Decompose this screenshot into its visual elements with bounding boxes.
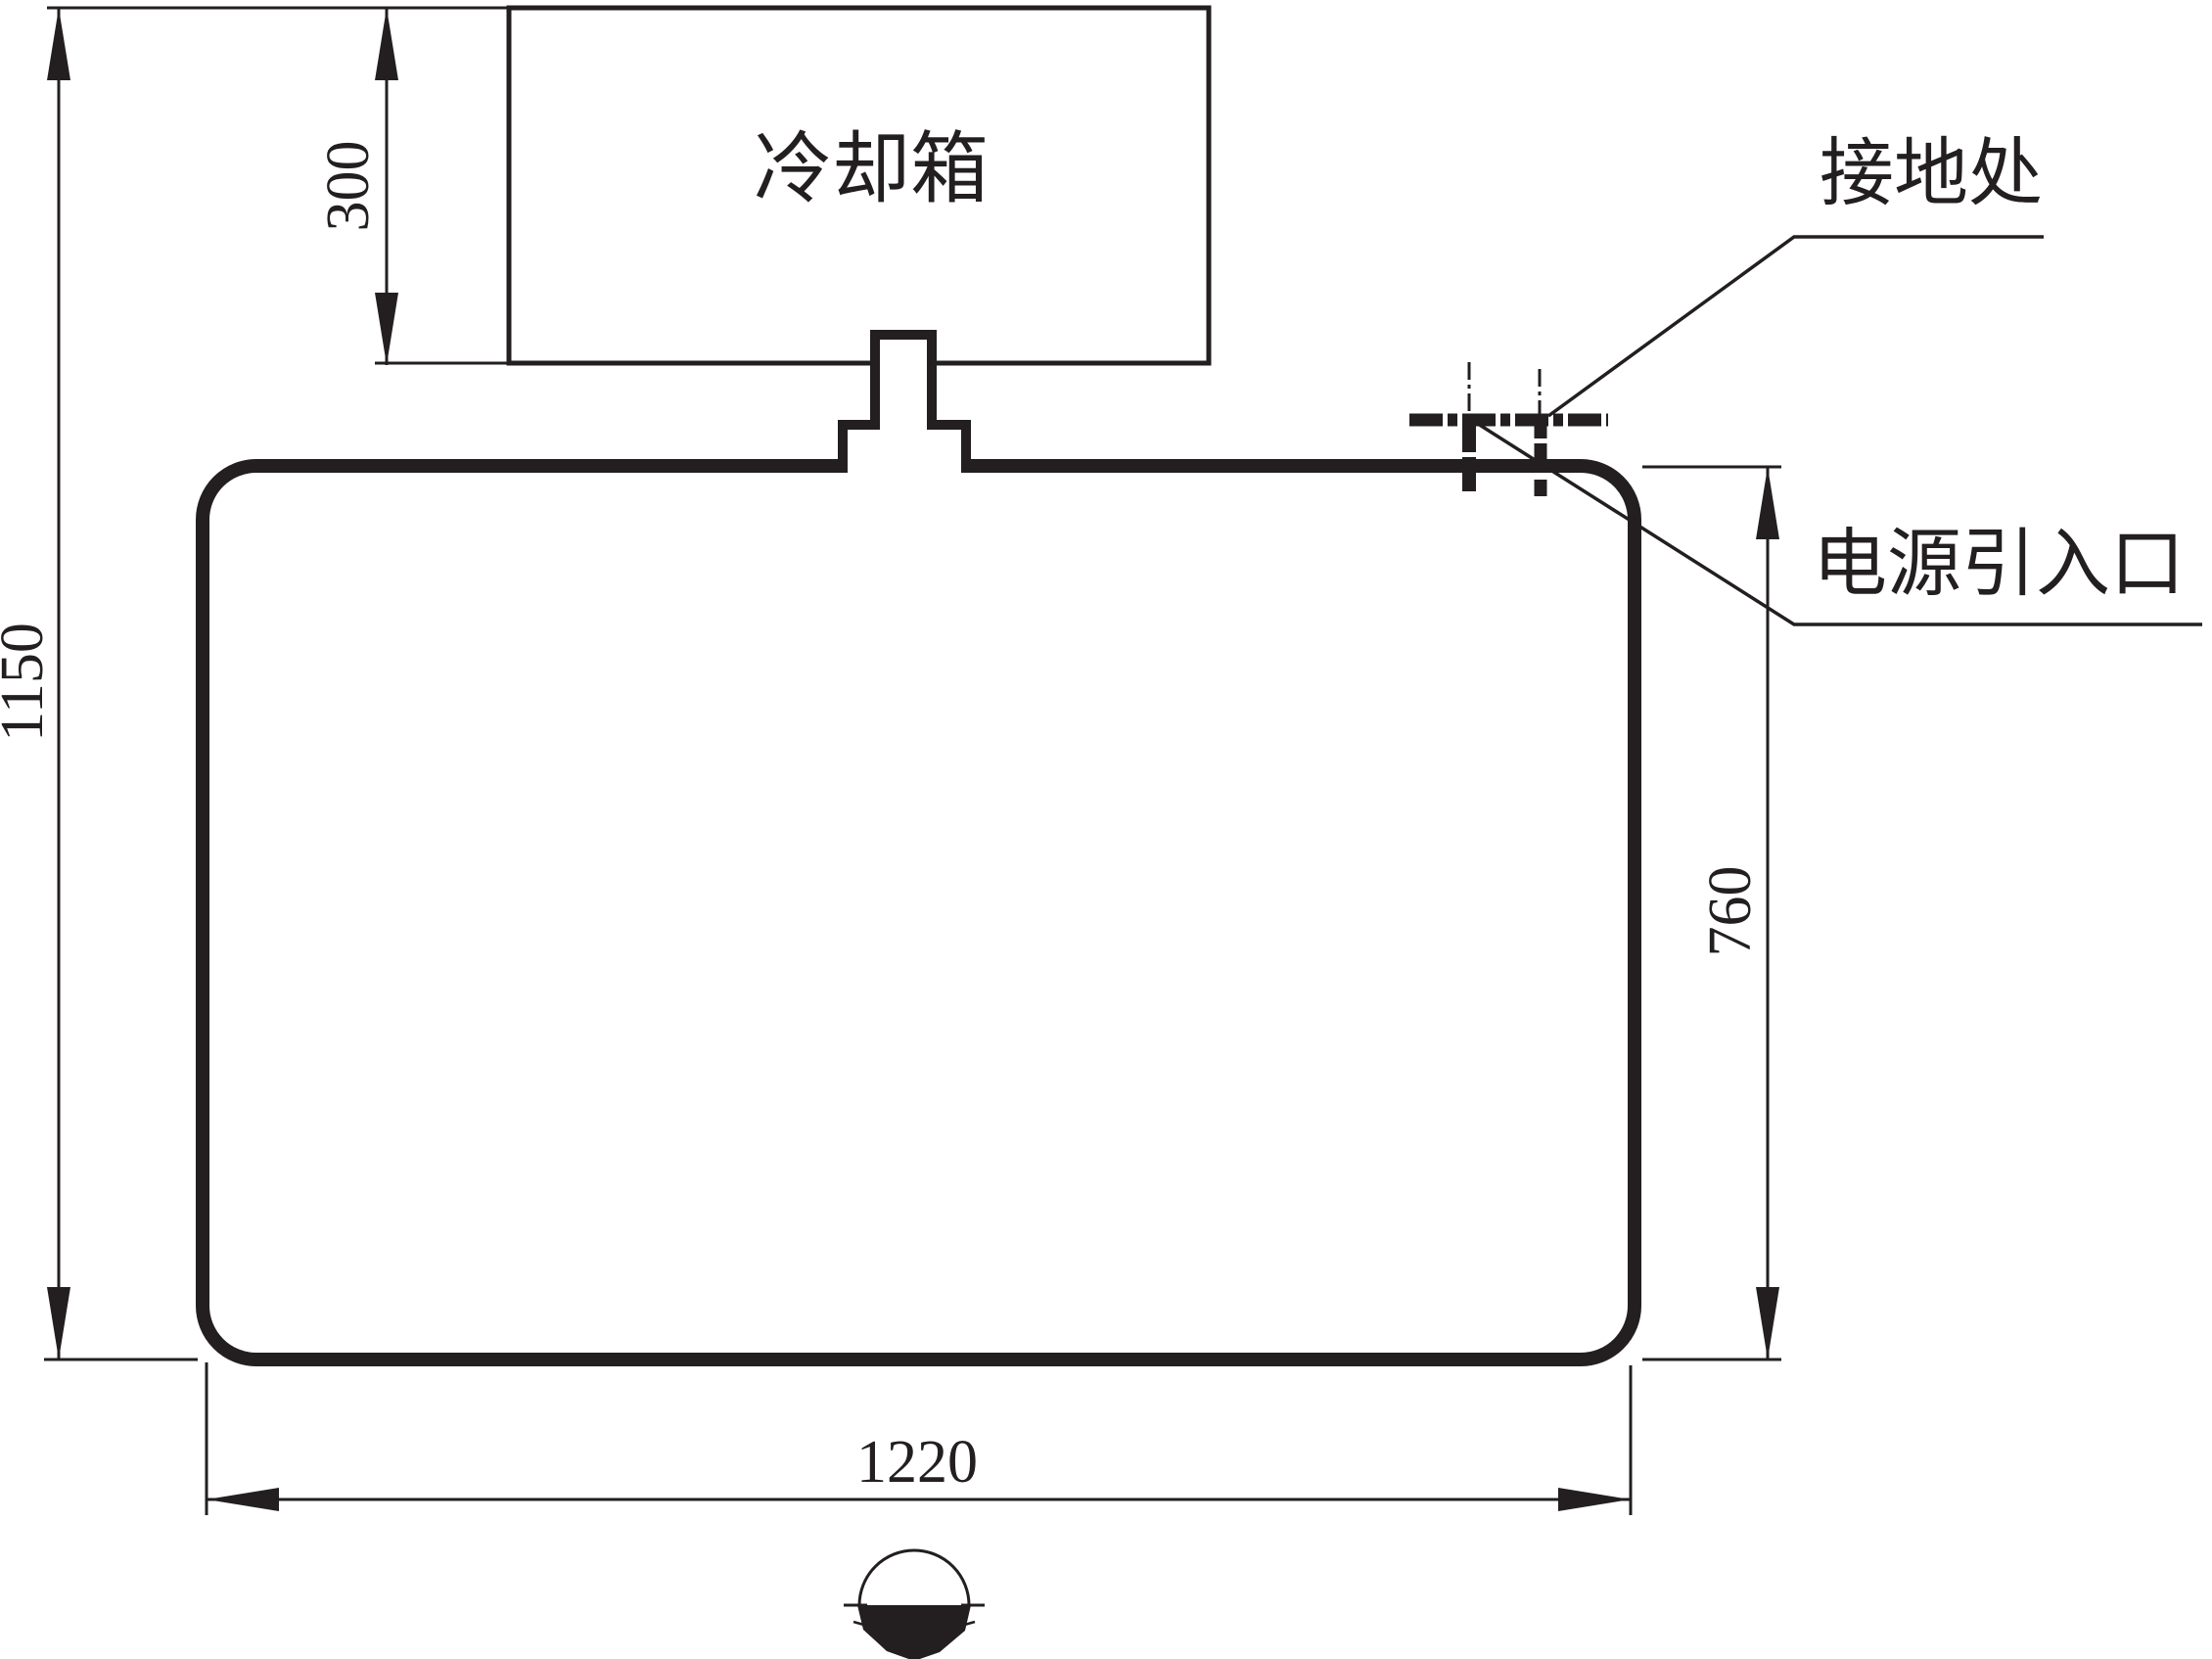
bottom-symbol-top-arc: [859, 1550, 969, 1605]
arrowhead-body-height-bottom: [1756, 1287, 1779, 1359]
main-body-outline: [203, 466, 1635, 1359]
technical-drawing-page: 冷却箱 接地处 电源引入口 1150 300 760 1220: [0, 0, 2212, 1659]
arrowhead-body-height-top: [1756, 467, 1779, 539]
arrowhead-cooling-height-bottom: [375, 293, 398, 365]
bottom-symbol-filled-half: [857, 1605, 971, 1659]
arrowhead-total-height-top: [47, 8, 70, 80]
technical-drawing-svg: 冷却箱 接地处 电源引入口 1150 300 760 1220: [0, 0, 2212, 1659]
arrowhead-body-width-right: [1558, 1488, 1631, 1511]
dimension-value-cooling-box-height: 300: [315, 141, 382, 232]
arrowhead-body-width-left: [207, 1488, 279, 1511]
arrowhead-cooling-height-top: [375, 8, 398, 80]
dimension-value-body-height: 760: [1697, 866, 1764, 957]
connector-duct-outline: [843, 335, 966, 473]
power-inlet-label: 电源引入口: [1813, 524, 2185, 606]
cooling-box-label: 冷却箱: [754, 127, 989, 213]
grounding-label: 接地处: [1820, 133, 2043, 215]
leader-grounding: [1548, 237, 2044, 416]
dimension-value-total-height: 1150: [0, 622, 56, 742]
dimension-value-body-width: 1220: [856, 1429, 978, 1496]
arrowhead-total-height-bottom: [47, 1287, 70, 1359]
